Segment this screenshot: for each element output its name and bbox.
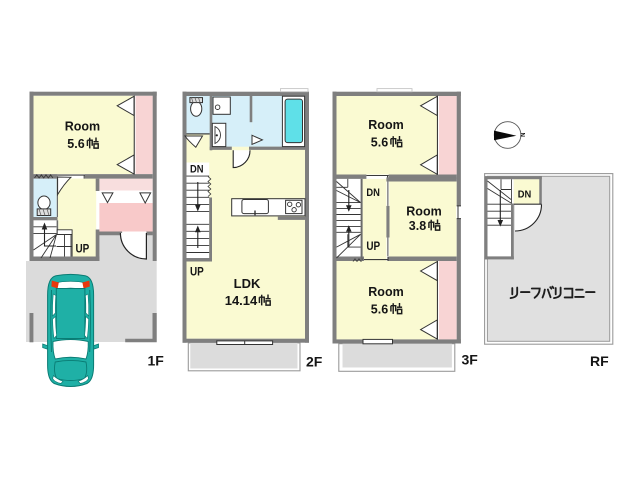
svg-text:RF: RF [590, 353, 609, 369]
svg-text:N: N [518, 133, 524, 137]
svg-text:UP: UP [366, 241, 380, 253]
svg-text:LDK: LDK [234, 276, 261, 291]
svg-text:Room: Room [65, 120, 100, 134]
svg-text:Room: Room [368, 285, 403, 299]
svg-text:UP: UP [190, 266, 204, 278]
svg-text:1F: 1F [148, 353, 165, 369]
svg-text:2F: 2F [306, 354, 323, 370]
svg-text:3.8: 3.8 [409, 219, 426, 233]
svg-text:UP: UP [76, 243, 90, 255]
svg-text:14.14: 14.14 [225, 293, 258, 308]
svg-text:DN: DN [518, 189, 532, 201]
svg-text:Room: Room [368, 118, 403, 132]
svg-text:DN: DN [190, 163, 204, 175]
svg-text:5.6: 5.6 [371, 303, 388, 317]
svg-text:5.6: 5.6 [371, 136, 388, 150]
svg-text:Room: Room [406, 205, 441, 219]
svg-text:DN: DN [366, 187, 380, 199]
svg-text:5.6: 5.6 [67, 137, 84, 151]
svg-text:3F: 3F [462, 352, 479, 368]
